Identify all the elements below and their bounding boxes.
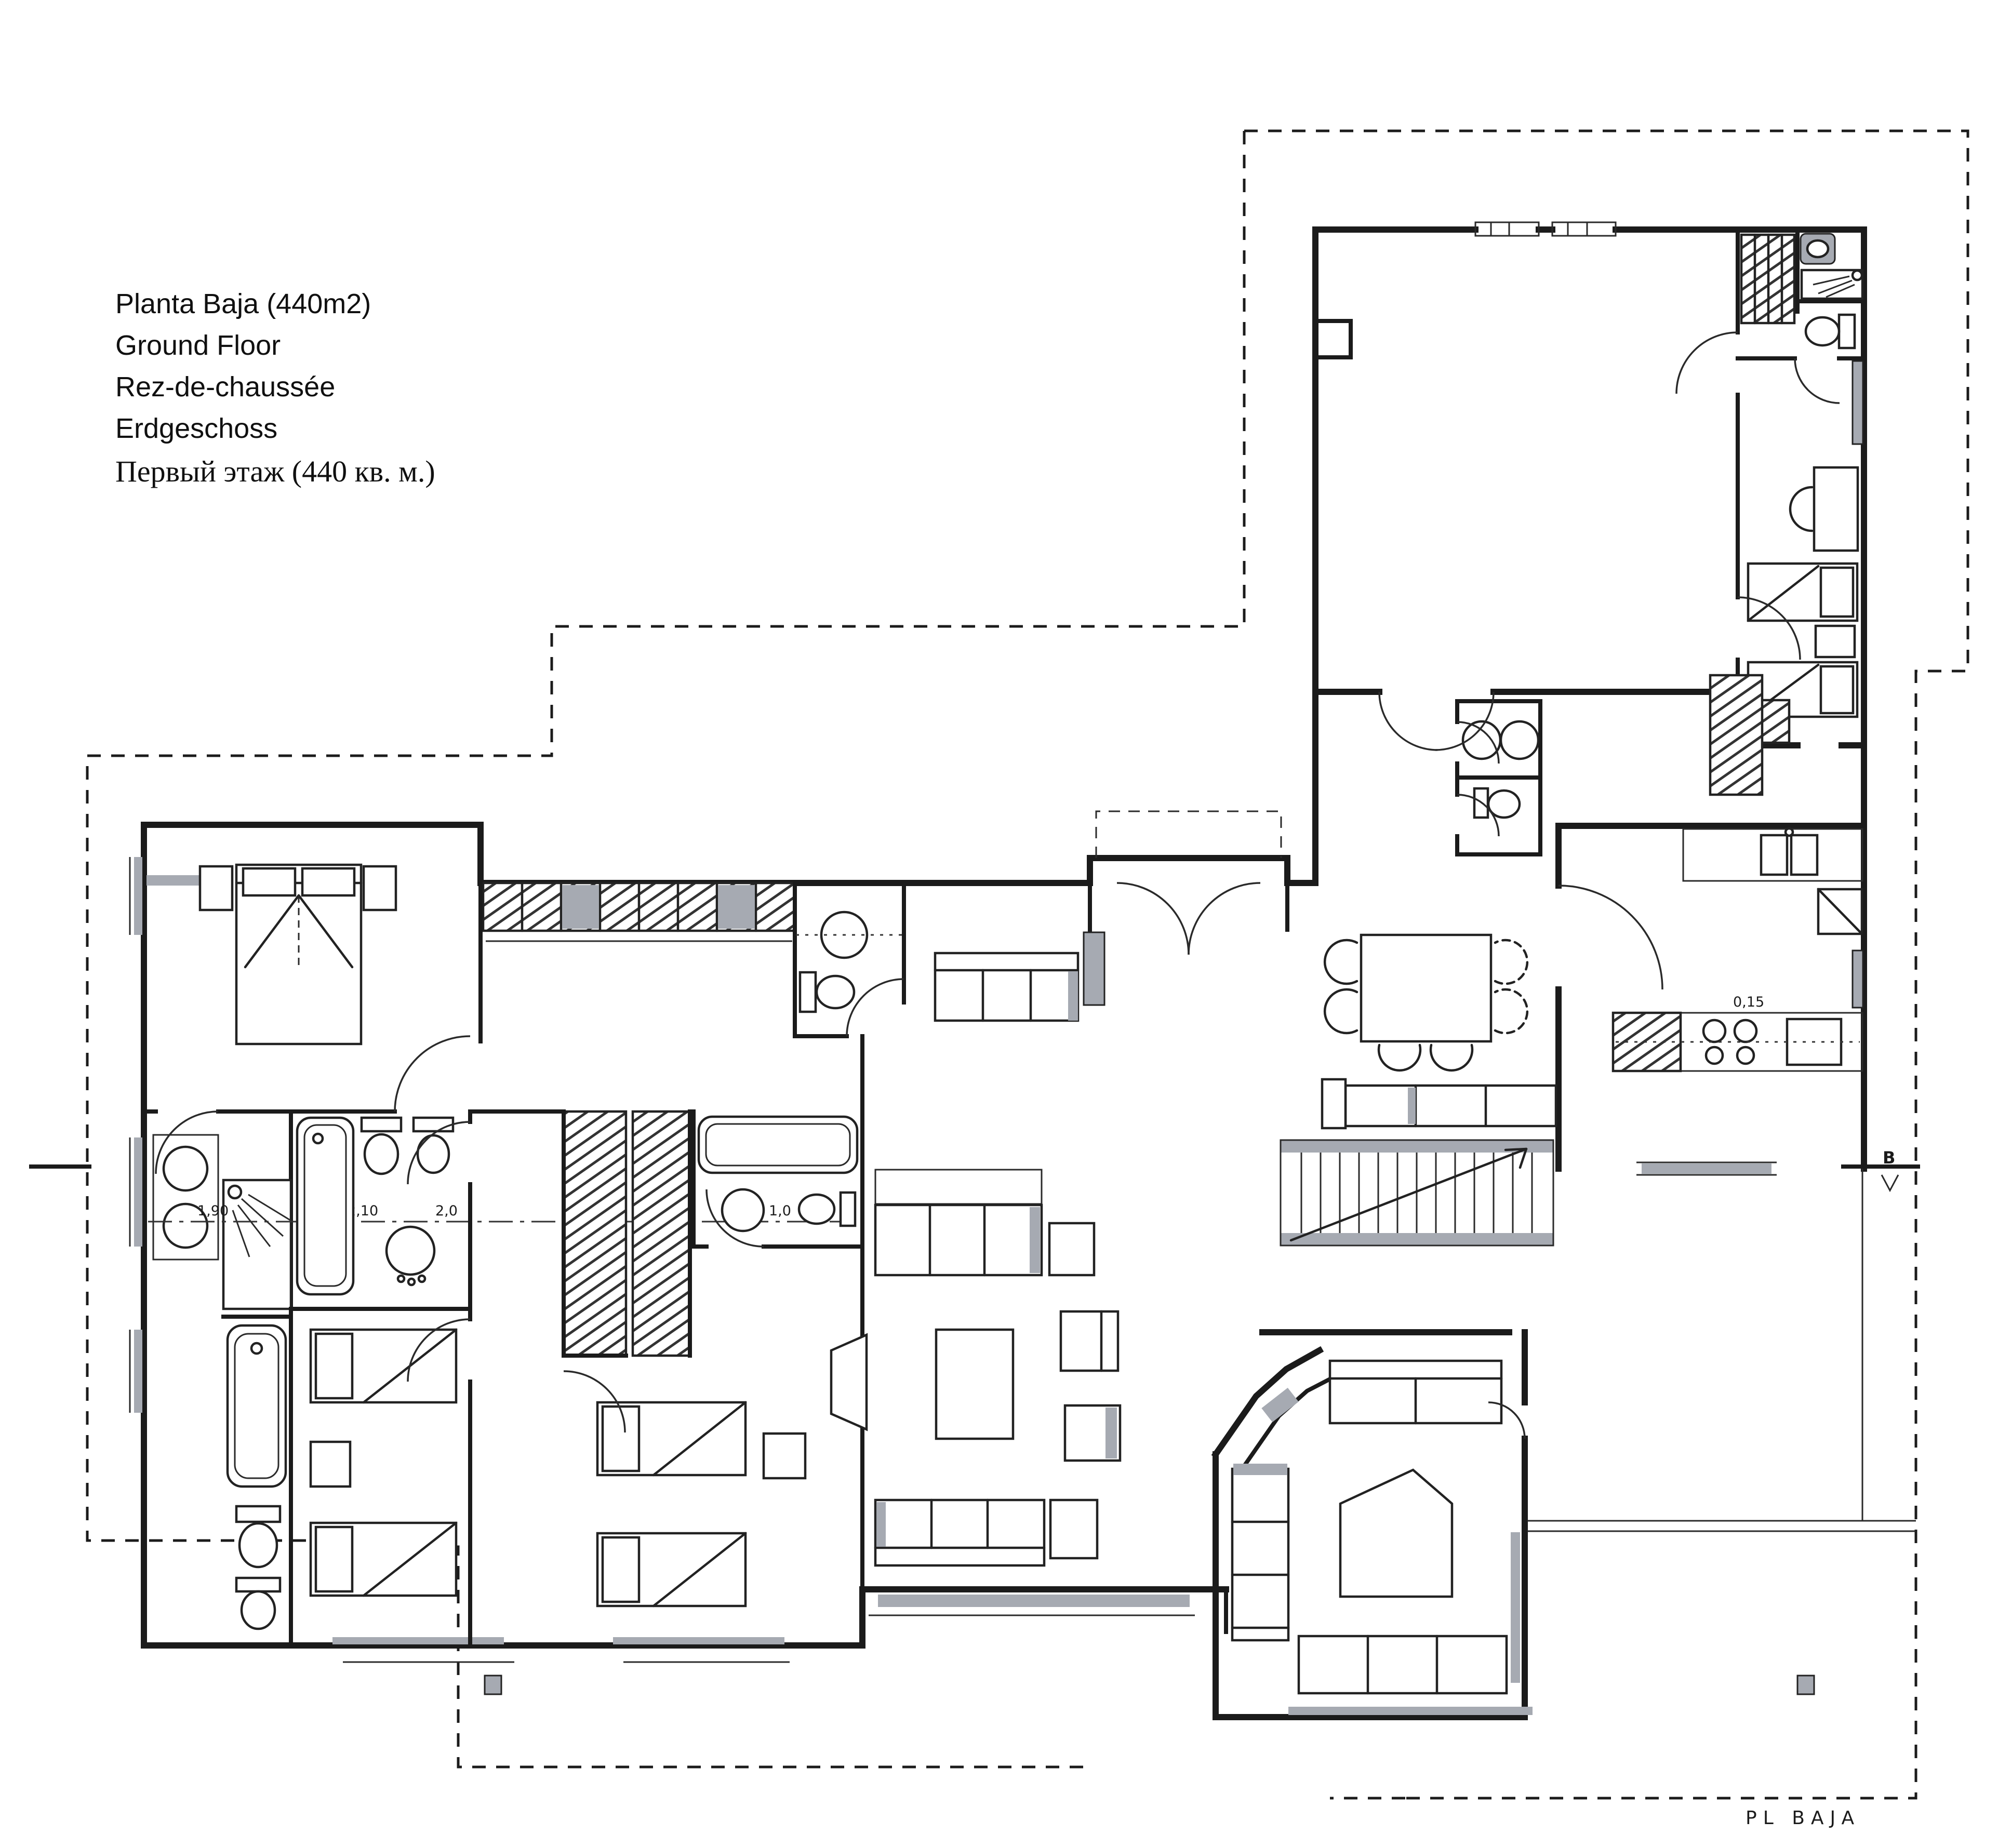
kitchen-door-arc	[1559, 886, 1662, 989]
dim-shower: 1,90	[197, 1203, 229, 1219]
entry-hall	[1084, 811, 1281, 1005]
hall-bench	[1322, 1079, 1556, 1128]
nightstand	[1816, 626, 1855, 657]
bench	[1299, 1636, 1507, 1693]
shower	[1802, 270, 1862, 299]
dining-chair	[1495, 989, 1527, 1033]
toilet	[1806, 315, 1855, 348]
desk	[1790, 467, 1858, 551]
washbasin	[1801, 234, 1835, 264]
dining-table	[1361, 935, 1491, 1041]
dim-kitchen: 0,15	[1733, 994, 1764, 1010]
entry-canopy	[1096, 811, 1281, 858]
terrace-columns	[485, 1676, 1814, 1694]
lounge-table	[1340, 1470, 1452, 1597]
entry-door-arc	[1189, 883, 1260, 955]
nightstand	[200, 866, 232, 910]
toilet	[236, 1506, 280, 1567]
living-room	[831, 1170, 1120, 1565]
nightstand	[764, 1434, 805, 1478]
dining-area	[1325, 935, 1527, 1070]
side-table	[1049, 1223, 1094, 1275]
corridor-bench	[935, 953, 1078, 1021]
section-marker-b: B	[1883, 1148, 1895, 1168]
dim-bath3: 1,0	[769, 1203, 791, 1219]
wing-bathroom	[1801, 234, 1863, 444]
staircase	[1281, 1140, 1553, 1246]
fireplace	[1232, 1464, 1288, 1640]
side-table	[1050, 1500, 1097, 1558]
dining-chair	[1325, 989, 1357, 1033]
bathroom-3	[694, 1036, 862, 1589]
radiator	[1084, 932, 1104, 1005]
sofa	[875, 1205, 1042, 1275]
corridor-wardrobes	[483, 883, 795, 941]
bathtub	[297, 1118, 353, 1294]
coffee-table	[936, 1330, 1013, 1439]
single-bed	[311, 1523, 456, 1596]
sofa	[875, 1500, 1044, 1565]
speaker-cabinet	[831, 1335, 867, 1429]
armchair	[1065, 1405, 1120, 1461]
small-wc	[795, 883, 904, 1036]
toilet	[800, 972, 854, 1012]
pantry-closet	[1710, 675, 1762, 795]
floor-plan-drawing: B	[0, 0, 1998, 1848]
stair-treads	[1301, 1153, 1532, 1233]
glazing	[1511, 1532, 1520, 1683]
single-bed	[597, 1533, 745, 1606]
hall-closets	[564, 1112, 690, 1356]
dim-basin: 2,0	[435, 1203, 458, 1219]
console-table	[875, 1170, 1042, 1204]
armchair	[1061, 1311, 1118, 1371]
nightstand	[364, 866, 396, 910]
washbasin	[164, 1147, 207, 1190]
bidet	[236, 1578, 280, 1629]
floor-plan-sheet: Planta Baja (440m2) Ground Floor Rez-de-…	[0, 0, 1998, 1848]
stair-direction-arrow	[1291, 1149, 1526, 1240]
kitchen: 0,15	[1559, 826, 1864, 1175]
bench	[1330, 1361, 1501, 1423]
fireplace-lounge	[1216, 1169, 1916, 1717]
toilet	[799, 1193, 855, 1226]
kitchen-sink	[1761, 828, 1817, 875]
single-bed	[597, 1402, 745, 1475]
single-bed	[311, 1330, 456, 1402]
double-bed	[236, 865, 361, 1044]
dining-chair	[1379, 1045, 1420, 1070]
washbasin	[1501, 721, 1538, 759]
master-bathroom	[153, 1112, 291, 1645]
entry-door-arc	[1117, 883, 1189, 955]
bedroom-door-arc	[395, 1036, 470, 1112]
radiator	[1853, 950, 1863, 1008]
single-bed	[1748, 564, 1857, 621]
shower	[223, 1180, 291, 1309]
bathtub	[699, 1117, 857, 1173]
toilet	[362, 1118, 401, 1174]
guest-wc-block	[1457, 701, 1540, 854]
bathtub	[228, 1325, 286, 1487]
wing-wardrobe	[1741, 235, 1794, 323]
dining-chair	[1325, 940, 1357, 984]
radiator	[1853, 361, 1863, 444]
dining-chair	[1495, 940, 1527, 984]
plan-name-label: PL BAJA	[1746, 1807, 1860, 1829]
nightstand	[311, 1442, 350, 1487]
washbasin	[387, 1227, 434, 1285]
dining-chair	[1431, 1045, 1472, 1070]
bedroom-a	[311, 1319, 470, 1596]
washbasin	[722, 1189, 764, 1231]
bedroom-b	[564, 1371, 805, 1606]
sill	[1288, 1707, 1533, 1715]
